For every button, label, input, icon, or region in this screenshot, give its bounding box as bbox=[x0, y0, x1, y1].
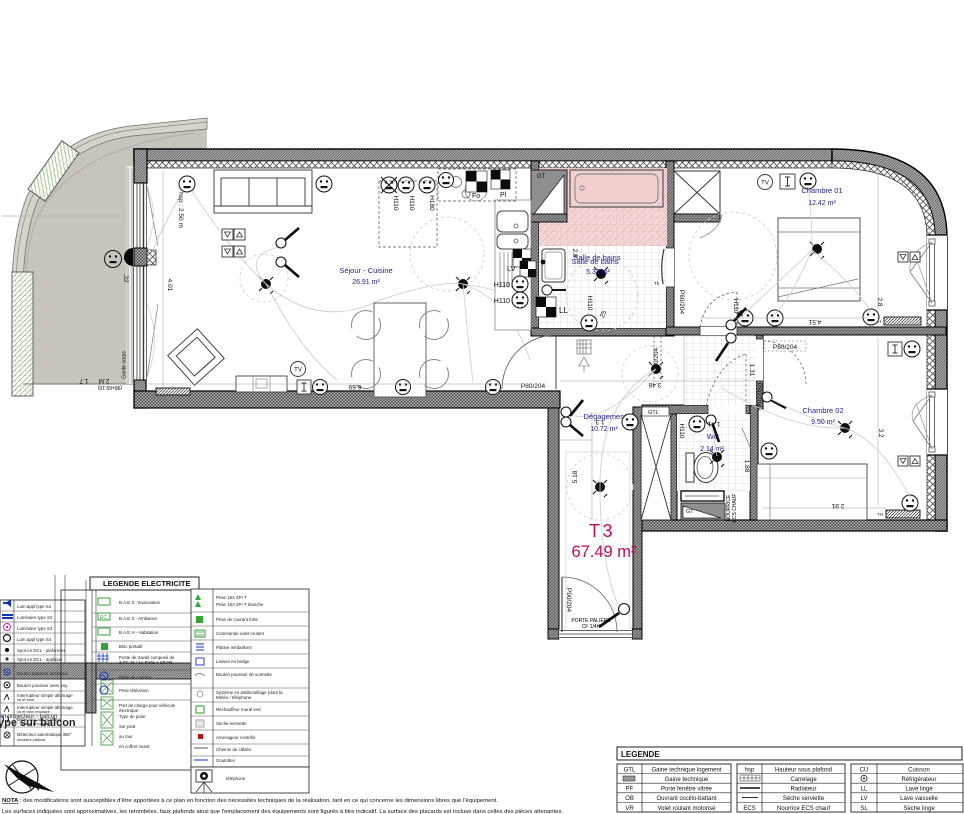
svg-text:P80/204: P80/204 bbox=[773, 344, 798, 351]
svg-text:TV: TV bbox=[761, 181, 769, 187]
svg-text:ECS CHAUF: ECS CHAUF bbox=[732, 494, 738, 523]
svg-text:Cuisson: Cuisson bbox=[908, 767, 930, 773]
svg-text:Porte fenêtre vitrée: Porte fenêtre vitrée bbox=[661, 787, 713, 793]
svg-text:GT: GT bbox=[686, 509, 694, 515]
svg-text:2.91: 2.91 bbox=[831, 502, 844, 509]
svg-text:Chemin de câbles: Chemin de câbles bbox=[216, 747, 252, 752]
svg-text:12.42 m²: 12.42 m² bbox=[808, 200, 836, 207]
svg-text:NOTA : des modifications sont: NOTA : des modifications sont susceptibl… bbox=[2, 798, 498, 804]
svg-text:Détecteur automatique 360°: Détecteur automatique 360° bbox=[17, 732, 72, 737]
svg-text:Les surfaces indiquées sont ap: Les surfaces indiquées sont approximativ… bbox=[2, 809, 563, 814]
svg-text:Ouvrant oscillo-battant: Ouvrant oscillo-battant bbox=[656, 796, 716, 802]
svg-text:Réfrigérateur: Réfrigérateur bbox=[901, 777, 936, 783]
svg-text:B.A.E.S - Ambiance: B.A.E.S - Ambiance bbox=[119, 616, 158, 621]
svg-text:(98+69.10): (98+69.10) bbox=[98, 384, 123, 390]
svg-text:P60/204: P60/204 bbox=[678, 290, 685, 315]
svg-text:Type de pose:: Type de pose: bbox=[119, 714, 147, 719]
svg-text:GTL: GTL bbox=[624, 767, 636, 773]
svg-text:Prise de courant: Prise de courant bbox=[119, 675, 152, 680]
svg-text:Chambre 02: Chambre 02 bbox=[802, 406, 843, 415]
svg-text:Bloc portatif: Bloc portatif bbox=[119, 644, 143, 649]
svg-text:Volet roulant motorisé: Volet roulant motorisé bbox=[657, 806, 716, 812]
svg-text:Fo: Fo bbox=[472, 193, 480, 200]
svg-text:H110: H110 bbox=[494, 298, 510, 305]
svg-text:67.49 m²: 67.49 m² bbox=[571, 543, 637, 561]
svg-text:GTL: GTL bbox=[648, 410, 659, 416]
svg-text:H110: H110 bbox=[732, 298, 739, 313]
svg-text:P90/204: P90/204 bbox=[565, 588, 572, 613]
svg-text:Goulottes: Goulottes bbox=[216, 758, 236, 763]
svg-text:encastré plafond: encastré plafond bbox=[17, 738, 45, 742]
svg-text:B.A.E.H - Habitation: B.A.E.H - Habitation bbox=[119, 630, 159, 635]
svg-text:Chambre 01: Chambre 01 bbox=[801, 186, 842, 195]
svg-text:5.33 m²: 5.33 m² bbox=[586, 269, 610, 276]
svg-text:5.18: 5.18 bbox=[572, 470, 579, 483]
svg-text:Nourrice ECS chauf: Nourrice ECS chauf bbox=[777, 806, 830, 812]
svg-text:10.72 m²: 10.72 m² bbox=[590, 426, 618, 433]
svg-text:Luminaire type S2: Luminaire type S2 bbox=[17, 615, 53, 620]
svg-text:Bouton poussoir lumineux: Bouton poussoir lumineux bbox=[17, 671, 68, 676]
svg-text:Lave linge: Lave linge bbox=[905, 787, 933, 793]
svg-text:3.48: 3.48 bbox=[648, 381, 661, 388]
svg-text:2.M: 2.M bbox=[99, 377, 110, 384]
svg-text:T3: T3 bbox=[589, 521, 615, 541]
svg-text:SL: SL bbox=[860, 806, 868, 812]
svg-text:1.88: 1.88 bbox=[743, 460, 750, 473]
svg-text:LL: LL bbox=[861, 787, 868, 793]
svg-text:Liaison en bridge: Liaison en bridge bbox=[216, 659, 250, 664]
svg-text:Lum.appl type S4: Lum.appl type S4 bbox=[17, 637, 52, 642]
svg-text:OB: OB bbox=[625, 796, 634, 802]
svg-text:ECS: ECS bbox=[743, 806, 755, 812]
svg-text:hsp : 2.50 m: hsp : 2.50 m bbox=[177, 192, 184, 228]
svg-text:Météo / téléphone: Météo / téléphone bbox=[216, 695, 252, 700]
svg-text:P80/204: P80/204 bbox=[755, 383, 762, 408]
svg-text:2.14 m²: 2.14 m² bbox=[700, 446, 724, 453]
svg-text:H180: H180 bbox=[428, 195, 435, 211]
svg-text:1.31: 1.31 bbox=[748, 364, 755, 377]
svg-text:LV: LV bbox=[507, 264, 516, 273]
svg-text:électrique:: électrique: bbox=[119, 708, 139, 713]
svg-text:H110: H110 bbox=[392, 195, 399, 210]
svg-text:3 PC 16 / 1a RJ45 + 2RJ45: 3 PC 16 / 1a RJ45 + 2RJ45 bbox=[119, 660, 173, 665]
svg-text:Prise de courant forte: Prise de courant forte bbox=[216, 617, 259, 622]
svg-text:Platine médaillons: Platine médaillons bbox=[216, 645, 252, 650]
svg-text:2.8: 2.8 bbox=[876, 297, 883, 306]
svg-text:hsp: hsp bbox=[745, 767, 755, 773]
svg-text:EC: EC bbox=[100, 615, 107, 621]
svg-text:Bouton poussoir de sonnette: Bouton poussoir de sonnette bbox=[216, 672, 272, 677]
svg-text:TV: TV bbox=[294, 368, 302, 374]
svg-text:4.51: 4.51 bbox=[808, 318, 821, 325]
svg-text:Aménageur contrôle: Aménageur contrôle bbox=[216, 735, 256, 740]
svg-text:Salle de bains: Salle de bains bbox=[571, 257, 618, 266]
svg-text:LEGENDE: LEGENDE bbox=[621, 750, 660, 759]
svg-text:TH: TH bbox=[877, 512, 883, 517]
svg-text:H110: H110 bbox=[494, 282, 510, 289]
svg-text:1.41: 1.41 bbox=[707, 420, 720, 427]
svg-text:4.01: 4.01 bbox=[166, 279, 173, 292]
svg-text:Prise télévision: Prise télévision bbox=[119, 688, 149, 693]
svg-text:H110: H110 bbox=[586, 295, 593, 310]
svg-text:VR: VR bbox=[625, 806, 634, 812]
svg-text:téléphone: téléphone bbox=[226, 776, 246, 781]
svg-text:au mur: au mur bbox=[119, 734, 133, 739]
svg-text:Prise 16A 2P+T étanche: Prise 16A 2P+T étanche bbox=[216, 602, 264, 607]
svg-text:Pl: Pl bbox=[500, 192, 507, 199]
svg-text:Gaine technique: Gaine technique bbox=[665, 777, 709, 783]
svg-text:P60/204: P60/204 bbox=[653, 348, 660, 373]
svg-text:Lave vaisselle: Lave vaisselle bbox=[900, 796, 938, 802]
svg-text:GT: GT bbox=[537, 174, 546, 180]
svg-text:Commande volet roulant: Commande volet roulant bbox=[216, 631, 265, 636]
svg-text:Sèche serviette: Sèche serviette bbox=[783, 796, 825, 802]
svg-text:LEGENDE ELECTRICITE: LEGENDE ELECTRICITE bbox=[103, 579, 191, 588]
svg-text:PF: PF bbox=[626, 787, 634, 793]
svg-text:B.A.E.S - Evacuation: B.A.E.S - Evacuation bbox=[119, 600, 161, 605]
svg-text:.32: .32 bbox=[122, 273, 129, 282]
svg-text:Dégagement: Dégagement bbox=[584, 412, 628, 421]
svg-text:Luminaire type S3: Luminaire type S3 bbox=[17, 626, 53, 631]
svg-text:9.50 m²: 9.50 m² bbox=[811, 419, 835, 426]
svg-text:H110: H110 bbox=[408, 195, 415, 210]
svg-text:Sèche linge: Sèche linge bbox=[903, 806, 935, 812]
svg-text:26.91 m²: 26.91 m² bbox=[352, 279, 380, 286]
svg-text:Sur pied: Sur pied bbox=[119, 724, 136, 729]
svg-text:Carrelage: Carrelage bbox=[790, 777, 817, 783]
svg-text:LL: LL bbox=[559, 306, 568, 315]
svg-text:Hauteur sous plafond: Hauteur sous plafond bbox=[775, 767, 832, 773]
svg-text:Séjour - Cuisine: Séjour - Cuisine bbox=[339, 266, 392, 275]
svg-text:Radiateur: Radiateur bbox=[790, 787, 816, 793]
svg-text:Lum.appl type S1: Lum.appl type S1 bbox=[17, 604, 52, 609]
svg-text:Th: Th bbox=[654, 281, 660, 286]
svg-text:Sèche-serviette: Sèche-serviette bbox=[216, 721, 247, 726]
svg-text:en coffret mural: en coffret mural bbox=[119, 744, 149, 749]
svg-text:.um projecteur - balcon: .um projecteur - balcon bbox=[0, 714, 57, 720]
svg-text:Bouton poussoir sans voy.: Bouton poussoir sans voy. bbox=[17, 683, 68, 688]
svg-text:va et vient: va et vient bbox=[17, 698, 35, 702]
svg-text:H110: H110 bbox=[678, 423, 685, 438]
svg-text:Garde corps: Garde corps bbox=[122, 351, 128, 379]
svg-text:CU: CU bbox=[860, 767, 869, 773]
svg-text:Réchauffeur mural vert: Réchauffeur mural vert bbox=[216, 707, 261, 712]
svg-text:LV: LV bbox=[861, 796, 868, 802]
svg-text:Prise 16A 2P+T: Prise 16A 2P+T bbox=[216, 595, 247, 600]
svg-text:Spot en DCL - applique: Spot en DCL - applique bbox=[17, 657, 63, 662]
svg-text:CF 1/4H: CF 1/4H bbox=[582, 624, 601, 630]
svg-text:Spot en DCL - plafonnier: Spot en DCL - plafonnier bbox=[17, 648, 66, 653]
svg-text:1.7: 1.7 bbox=[79, 377, 88, 384]
svg-text:3.2: 3.2 bbox=[877, 428, 884, 437]
svg-text:Gaine technique logement: Gaine technique logement bbox=[651, 767, 721, 773]
